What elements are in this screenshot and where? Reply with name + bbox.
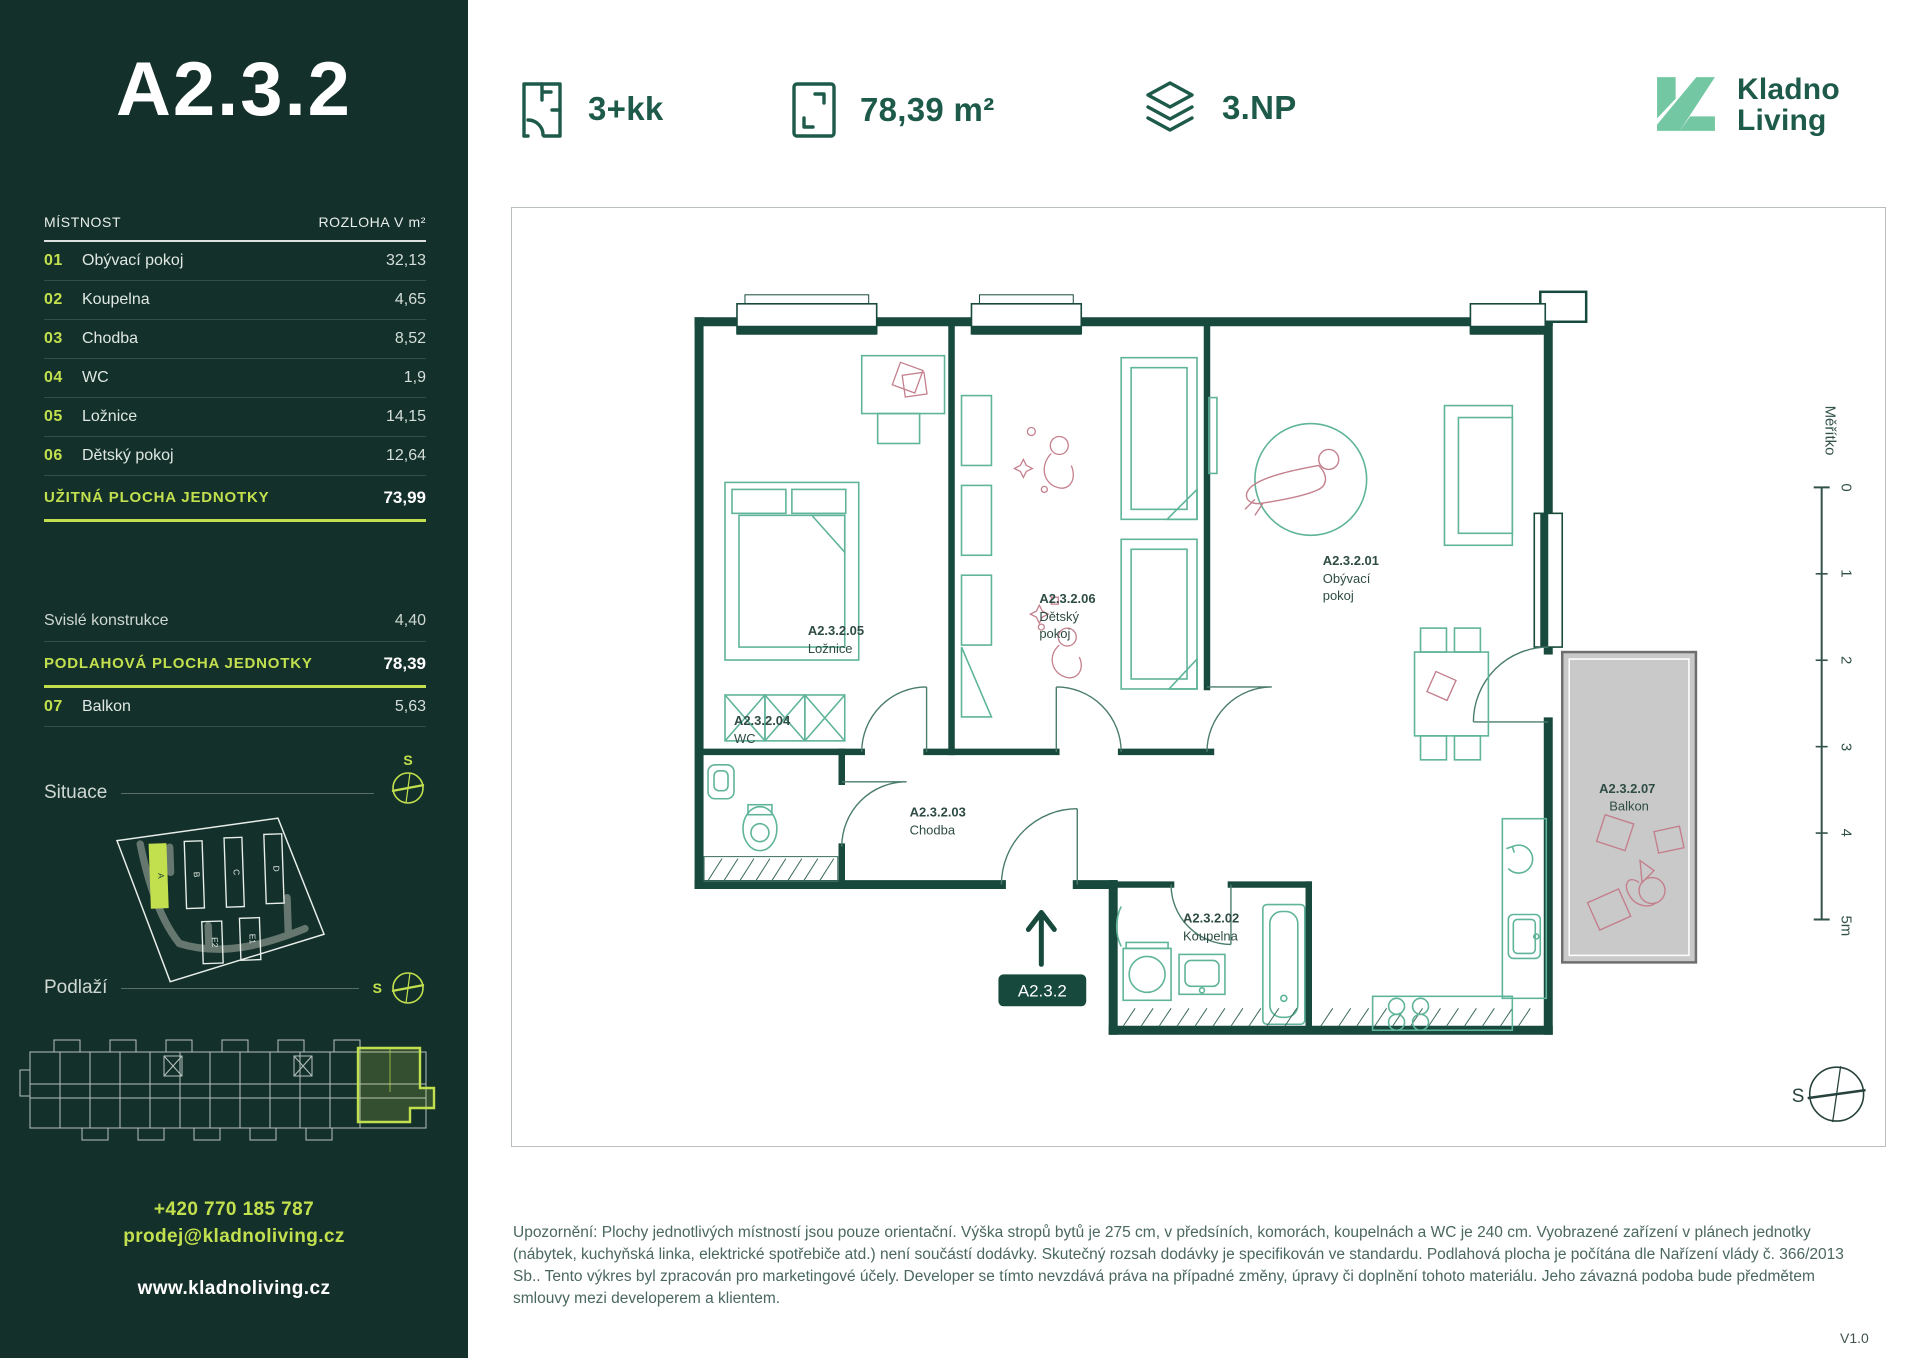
entrance-arrow-icon (1028, 912, 1054, 964)
table-row: 06 Dětský pokoj 12,64 (44, 437, 426, 476)
building-e1-label: E1 (247, 934, 257, 945)
balcony-row: 07 Balkon 5,63 (44, 688, 426, 727)
wc-fixtures (708, 765, 777, 851)
vertical-structures-row: Svislé konstrukce 4,40 (44, 600, 426, 642)
row-num: 02 (44, 291, 82, 309)
scale-bar: Měřítko 0 1 2 3 4 5m (1814, 406, 1855, 937)
compass-icon (388, 768, 428, 808)
row-num: 01 (44, 252, 82, 270)
spec-floor: 3.NP (1140, 80, 1297, 136)
floor-plan-frame: A2.3.2 A2.3.2.05 Ložnice A2.3.2.06 Dětsk… (511, 207, 1886, 1147)
site-map: A B C D E2 E1 (102, 816, 342, 984)
outer-walls (699, 322, 1548, 1030)
room-table: MÍSTNOST ROZLOHA V m² 01 Obývací pokoj 3… (44, 214, 426, 727)
row-num: 07 (44, 698, 82, 716)
plan-compass: S (1792, 1066, 1866, 1122)
kladno-living-mark (1655, 75, 1717, 135)
north-compass: S (388, 752, 428, 808)
phone-number: +420 770 185 787 (0, 1196, 468, 1223)
building-a-label: A (156, 873, 166, 879)
brand-logo: Kladno Living (1655, 74, 1840, 136)
situace-section: Situace S (44, 778, 428, 990)
vertical-structures-label: Svislé konstrukce (44, 612, 395, 630)
spec-area: 78,39 m² (790, 80, 994, 140)
floor-area-value: 78,39 (383, 654, 426, 674)
table-row: 05 Ložnice 14,15 (44, 398, 426, 437)
pillar (1540, 292, 1586, 322)
version-label: V1.0 (1840, 1330, 1869, 1346)
row-name: Ložnice (82, 408, 386, 426)
scale-tick: 1 (1838, 569, 1855, 577)
floor-plan-svg: A2.3.2 A2.3.2.05 Ložnice A2.3.2.06 Dětsk… (512, 208, 1885, 1146)
compass-letter: S (373, 980, 382, 996)
entrance-marker: A2.3.2 (998, 912, 1086, 1006)
usable-area-row: UŽITNÁ PLOCHA JEDNOTKY 73,99 (44, 476, 426, 522)
scale-tick: 0 (1838, 483, 1855, 491)
row-num: 03 (44, 330, 82, 348)
unit-title: A2.3.2 (0, 46, 468, 133)
children-furniture (962, 358, 1197, 717)
row-name: Chodba (82, 330, 395, 348)
row-name: Koupelna (82, 291, 395, 309)
building-d-label: D (271, 865, 281, 871)
table-row: 04 WC 1,9 (44, 359, 426, 398)
situace-label: Situace (44, 782, 107, 804)
row-area: 12,64 (386, 447, 426, 465)
area-value: 78,39 m² (860, 91, 994, 129)
row-area: 8,52 (395, 330, 426, 348)
north-compass: S (373, 968, 428, 1008)
layers-icon (1140, 80, 1200, 136)
row-num: 04 (44, 369, 82, 387)
scale-tick: 4 (1838, 829, 1855, 837)
compass-letter: S (403, 752, 412, 768)
row-name: Obývací pokoj (82, 252, 386, 270)
table-row: 03 Chodba 8,52 (44, 320, 426, 359)
divider (121, 793, 374, 794)
area-icon (790, 80, 838, 140)
row-name: WC (82, 369, 404, 387)
contact-block: +420 770 185 787 prodej@kladnoliving.cz … (0, 1196, 468, 1300)
vertical-structures-value: 4,40 (395, 612, 426, 630)
spec-layout: 3+kk (516, 80, 664, 138)
row-area: 1,9 (404, 369, 426, 387)
compass-icon (388, 968, 428, 1008)
floor-value: 3.NP (1222, 89, 1297, 127)
disclaimer-text: Upozornění: Plochy jednotlivých místnost… (513, 1222, 1858, 1310)
row-area: 5,63 (395, 698, 426, 716)
label-chodba: A2.3.2.03 Chodba (910, 805, 970, 838)
podlazi-label: Podlaží (44, 977, 107, 999)
website-url[interactable]: www.kladnoliving.cz (0, 1278, 468, 1300)
row-num: 05 (44, 408, 82, 426)
floorplan-icon (516, 80, 566, 138)
highlighted-unit (358, 1048, 434, 1122)
floor-area-label: PODLAHOVÁ PLOCHA JEDNOTKY (44, 655, 383, 672)
scale-tick: 5m (1838, 915, 1855, 936)
windows (737, 295, 1562, 647)
scale-tick: 2 (1838, 656, 1855, 664)
wc-tile-hatch (704, 857, 838, 882)
row-name: Dětský pokoj (82, 447, 386, 465)
scale-tick: 3 (1838, 743, 1855, 751)
usable-area-value: 73,99 (383, 488, 426, 508)
brand-name: Kladno Living (1737, 74, 1840, 136)
table-row: 01 Obývací pokoj 32,13 (44, 242, 426, 281)
unit-badge-label: A2.3.2 (1018, 981, 1067, 1000)
row-area: 32,13 (386, 252, 426, 270)
brand-line1: Kladno (1737, 74, 1840, 105)
podlazi-section: Podlaží S (44, 968, 428, 1168)
label-koupelna: A2.3.2.02 Koupelna (1183, 910, 1243, 943)
layout-value: 3+kk (588, 90, 664, 128)
row-area: 14,15 (386, 408, 426, 426)
col-room-header: MÍSTNOST (44, 214, 121, 230)
bedroom-furniture (725, 356, 945, 741)
building-e2-label: E2 (210, 937, 220, 948)
label-obyvaci: A2.3.2.01 Obývací pokoj (1323, 553, 1383, 603)
table-row: 02 Koupelna 4,65 (44, 281, 426, 320)
room-table-header: MÍSTNOST ROZLOHA V m² (44, 214, 426, 242)
row-num: 06 (44, 447, 82, 465)
building-b-label: B (192, 872, 202, 878)
col-area-header: ROZLOHA V m² (318, 214, 426, 230)
usable-area-label: UŽITNÁ PLOCHA JEDNOTKY (44, 489, 383, 506)
label-detsky: A2.3.2.06 Dětský pokoj (1039, 591, 1099, 641)
kitchen-fixtures (1373, 819, 1547, 1031)
email-address[interactable]: prodej@kladnoliving.cz (0, 1223, 468, 1250)
row-area: 4,65 (395, 291, 426, 309)
scale-label: Měřítko (1822, 406, 1839, 456)
doors (842, 647, 1548, 944)
compass-letter: S (1792, 1086, 1805, 1107)
sidebar: A2.3.2 MÍSTNOST ROZLOHA V m² 01 Obývací … (0, 0, 468, 1358)
floor-overview-map (18, 1018, 458, 1158)
divider (121, 988, 358, 989)
building-c-label: C (232, 869, 242, 875)
floor-area-row: PODLAHOVÁ PLOCHA JEDNOTKY 78,39 (44, 642, 426, 688)
desk-papers (892, 362, 927, 397)
brand-line2: Living (1737, 105, 1840, 136)
row-name: Balkon (82, 698, 395, 716)
floorplan-sheet: A2.3.2 MÍSTNOST ROZLOHA V m² 01 Obývací … (0, 0, 1920, 1358)
bathroom-tile-hatch (1123, 1008, 1530, 1026)
